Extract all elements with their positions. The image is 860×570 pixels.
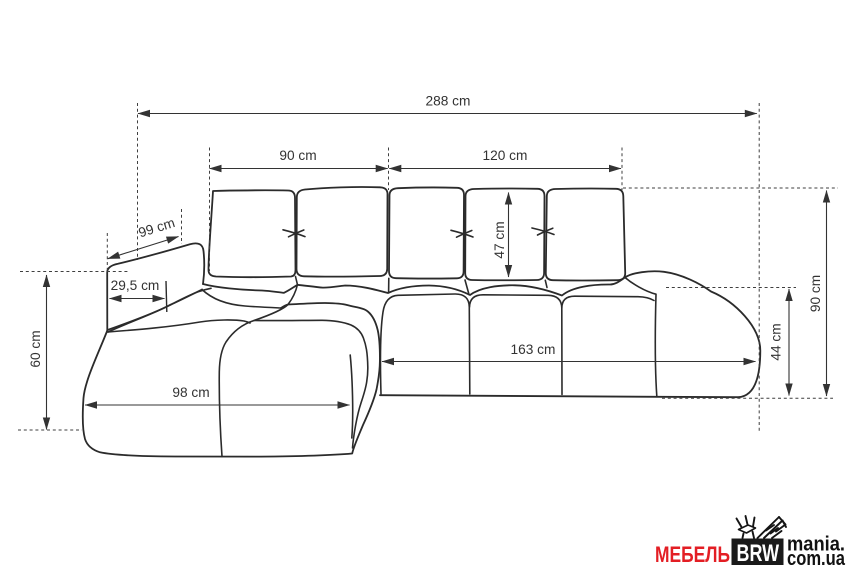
- svg-text:МЕБЕЛЬ: МЕБЕЛЬ: [655, 542, 730, 567]
- svg-text:120 cm: 120 cm: [483, 148, 528, 163]
- svg-text:90 cm: 90 cm: [808, 275, 823, 312]
- svg-text:90 cm: 90 cm: [279, 148, 316, 163]
- svg-text:60 cm: 60 cm: [28, 330, 43, 367]
- svg-text:288 cm: 288 cm: [426, 94, 471, 109]
- svg-text:44 cm: 44 cm: [769, 323, 784, 360]
- svg-text:163 cm: 163 cm: [511, 342, 556, 357]
- svg-text:BRW: BRW: [737, 540, 780, 567]
- svg-text:47 cm: 47 cm: [492, 221, 507, 258]
- svg-text:29,5 cm: 29,5 cm: [111, 278, 160, 293]
- svg-text:com.ua: com.ua: [787, 548, 846, 570]
- svg-text:98 cm: 98 cm: [172, 385, 209, 400]
- svg-text:99 cm: 99 cm: [137, 215, 177, 240]
